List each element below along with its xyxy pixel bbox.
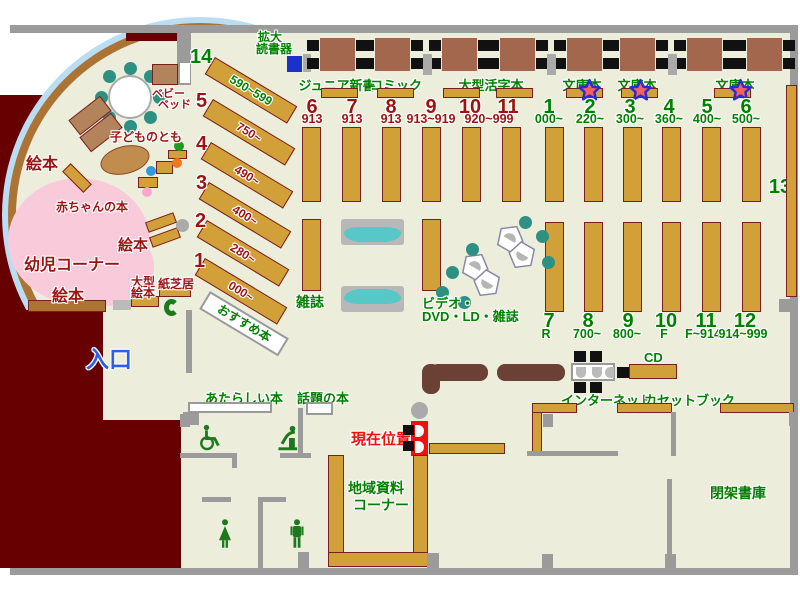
av-label-2: DVD・LD・雑誌 <box>422 306 519 325</box>
public-phone-icon <box>164 299 179 316</box>
stack-shelf <box>584 222 603 312</box>
pillar <box>668 54 677 75</box>
stack-shelf <box>662 127 681 202</box>
shelf-number: 2 <box>195 210 206 233</box>
reading-table <box>320 38 355 71</box>
stack-shelf <box>302 219 321 291</box>
reading-chair <box>362 58 374 69</box>
reading-chair <box>307 40 319 51</box>
reading-chair <box>783 58 795 69</box>
reading-chair <box>674 40 686 51</box>
shelf-number: 14 <box>190 46 212 69</box>
reading-table <box>567 38 602 71</box>
reading-chair <box>607 40 619 51</box>
pillar-2 <box>665 554 676 568</box>
stack-range: 914~999 <box>718 327 767 341</box>
reading-table <box>442 38 477 71</box>
round-table-chair <box>124 62 137 75</box>
reading-chair <box>734 58 746 69</box>
local-corner-pillar <box>427 553 439 572</box>
stack-range: 000~ <box>535 112 563 126</box>
stack-shelf <box>302 127 321 202</box>
stack-shelf <box>502 127 521 202</box>
stack-shelf <box>382 127 401 202</box>
picture-books-label-1: 絵本 <box>26 150 58 174</box>
wheelchair-icon <box>196 424 224 452</box>
stack-range: 920~999 <box>464 112 513 126</box>
toilet-wall-8 <box>298 552 309 568</box>
reading-chair <box>783 40 795 51</box>
cd-label: CD <box>644 350 663 365</box>
toilet-wall-2 <box>232 453 237 468</box>
children-door[interactable] <box>113 300 131 310</box>
carrel-chair <box>536 230 549 243</box>
bench-top <box>341 219 404 245</box>
stack-shelf <box>584 127 603 202</box>
large-picture-books-label-2: 絵本 <box>131 284 155 301</box>
marker-chair-2 <box>403 441 414 451</box>
pillar-1 <box>542 554 553 568</box>
reading-chair <box>487 40 499 51</box>
round-table-chair <box>144 111 157 124</box>
shelf-number: 5 <box>196 90 207 113</box>
stack-shelf <box>742 222 761 312</box>
cd-shelf <box>629 364 677 379</box>
wall-v-1 <box>671 412 676 456</box>
pillar <box>547 54 556 75</box>
pillar-4 <box>779 299 797 312</box>
shelf-number: 4 <box>196 133 207 156</box>
local-shelf-left <box>328 455 344 567</box>
stack-range: 700~ <box>573 327 601 341</box>
reading-chair <box>656 58 668 69</box>
stack-range: 913~919 <box>406 112 455 126</box>
toilet-wall-3 <box>280 453 311 458</box>
l-shelf-3 <box>720 403 794 413</box>
reading-chair <box>362 40 374 51</box>
service-counter-elbow-h <box>430 364 488 381</box>
picture-books-label-2: 絵本 <box>118 234 148 255</box>
wall-h-mid <box>527 451 618 456</box>
stack-range: 800~ <box>613 327 641 341</box>
stack-range: F~914 <box>685 327 721 341</box>
stack-shelf <box>662 222 681 312</box>
toddler-corner-label: 幼児コーナー <box>24 251 120 275</box>
bench-bottom <box>341 286 404 312</box>
reading-chair <box>411 40 423 51</box>
reading-chair <box>607 58 619 69</box>
reading-chair <box>429 40 441 51</box>
corridor-right-wall <box>186 310 192 373</box>
stack-range: 913 <box>381 112 402 126</box>
l-shelf-1-h <box>532 403 577 413</box>
reader-label-2: 読書器 <box>256 40 292 57</box>
topic-books-shelf <box>306 402 333 415</box>
service-counter-2 <box>497 364 565 381</box>
l1-pillar <box>543 414 553 427</box>
carrel-chair <box>519 216 532 229</box>
baby-books-label: 赤ちゃんの本 <box>56 198 128 215</box>
carrel-chair <box>446 266 459 279</box>
reading-table <box>687 38 722 71</box>
internet-chair-5 <box>617 367 629 378</box>
pillar-3 <box>789 412 798 426</box>
shelf-number: 3 <box>196 172 207 195</box>
stack-shelf <box>742 127 761 202</box>
round-table-chair <box>103 70 116 83</box>
reading-chair <box>536 40 548 51</box>
internet-table <box>571 363 615 381</box>
stack-shelf <box>422 219 441 291</box>
reading-chair <box>411 58 423 69</box>
stack-range: R <box>541 327 550 341</box>
local-shelf-right <box>413 455 428 567</box>
reading-table <box>500 38 535 71</box>
shelf-number: 1 <box>194 250 205 273</box>
reading-chair <box>734 40 746 51</box>
reading-chair <box>656 40 668 51</box>
carrel-chair <box>466 243 479 256</box>
kamishibai-label: 紙芝居 <box>158 275 194 292</box>
dot-pink <box>142 187 152 197</box>
stack-shelf-13 <box>786 85 797 297</box>
toilet-wall-1 <box>180 453 237 458</box>
reading-table <box>747 38 782 71</box>
stack-range: 300~ <box>616 112 644 126</box>
womens-toilet-icon <box>212 519 238 549</box>
local-materials-label-2: コーナー <box>353 495 409 515</box>
stack-shelf <box>545 127 564 202</box>
dot-blue <box>146 166 156 176</box>
local-shelf-bottom <box>328 552 428 567</box>
stack-range: 913 <box>302 112 323 126</box>
pillar <box>423 54 432 75</box>
pillar-circle <box>411 402 428 419</box>
wall-top <box>10 25 798 33</box>
reading-table <box>620 38 655 71</box>
picture-books-label-3: 絵本 <box>52 282 84 306</box>
internet-chair-2 <box>590 351 602 362</box>
step-shelf-2 <box>156 161 173 174</box>
current-location-label: 現在位置 <box>351 428 411 449</box>
stack-shelf <box>623 222 642 312</box>
stack-shelf <box>422 127 441 202</box>
magnifier-reader-icon <box>287 56 302 72</box>
new-books-shelf <box>188 402 272 413</box>
toilet-wall-5 <box>202 497 231 502</box>
pillar-circle-children <box>176 219 189 232</box>
counter-side-shelf <box>429 443 505 454</box>
baby-bed <box>152 64 178 85</box>
stack-range: 220~ <box>576 112 604 126</box>
dot-orange <box>172 158 182 168</box>
exterior-bottom-left <box>0 420 181 568</box>
toilet-wall-7 <box>258 500 263 568</box>
carrel-chair <box>542 256 555 269</box>
mens-toilet-icon <box>284 519 310 549</box>
entrance-label: 入口 <box>86 340 132 374</box>
reading-chair <box>487 58 499 69</box>
wall-bottom <box>10 568 798 575</box>
internet-chair-1 <box>574 351 586 362</box>
stack-range: 360~ <box>655 112 683 126</box>
stack-shelf <box>462 127 481 202</box>
kodomo-no-tomo-label: 子どものとも <box>110 128 182 145</box>
drinking-fountain-icon <box>275 424 303 452</box>
stack-range: 400~ <box>693 112 721 126</box>
reading-table <box>375 38 410 71</box>
stack-shelf <box>702 127 721 202</box>
marker-chair-1 <box>403 425 414 435</box>
reading-chair <box>554 40 566 51</box>
magazines-label: 雑誌 <box>296 292 324 312</box>
toilet-wall-9 <box>180 414 190 427</box>
library-floor-map: 絵本 絵本 絵本 赤ちゃんの本 幼児コーナー 子どものとも ベビー ベッド 大型… <box>0 0 800 600</box>
baby-bed-label-2: ベッド <box>158 96 191 112</box>
l-shelf-2 <box>617 403 672 413</box>
stack-range: F <box>660 327 668 341</box>
closed-stacks-label: 閉架書庫 <box>710 483 766 503</box>
stack-shelf <box>702 222 721 312</box>
stack-range: 500~ <box>732 112 760 126</box>
stack-shelf <box>342 127 361 202</box>
stack-range: 913 <box>342 112 363 126</box>
reading-chair <box>307 58 319 69</box>
stack-shelf <box>623 127 642 202</box>
